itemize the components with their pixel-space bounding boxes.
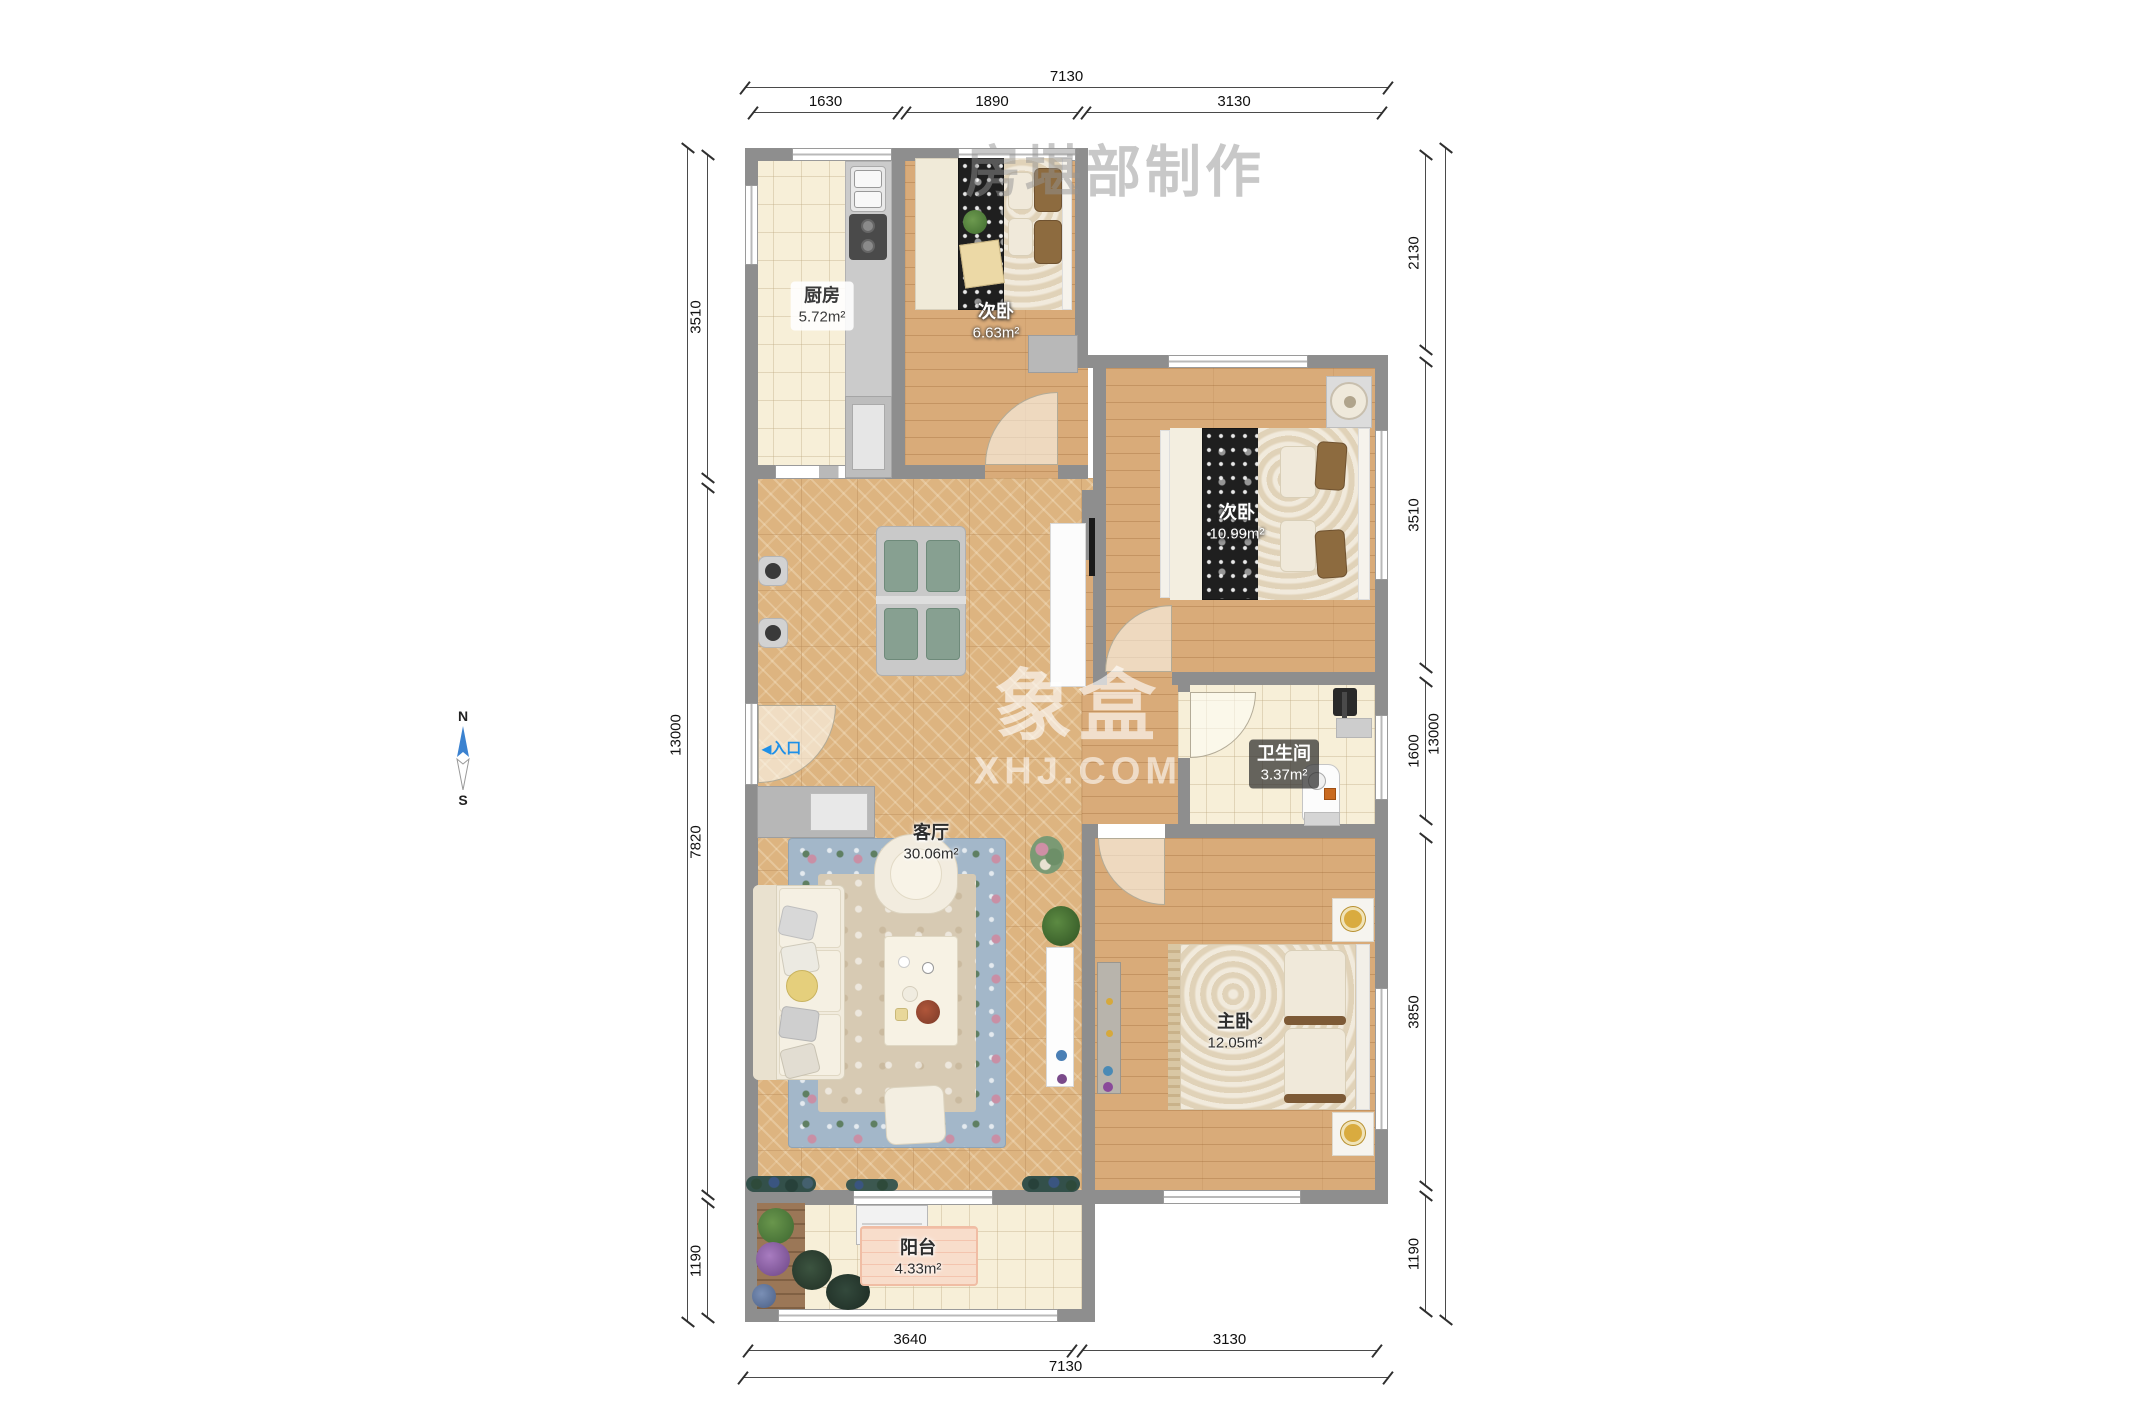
bedroom-small-area: 6.63m² xyxy=(973,324,1020,344)
master-pillow-accent-1 xyxy=(1284,1016,1346,1025)
coffee-cup-2 xyxy=(922,962,934,974)
dim-left-seg-3: 1190 xyxy=(707,1203,708,1318)
nightstand-lamp-1 xyxy=(1341,907,1365,931)
bedroom-small-pillow-white-2 xyxy=(1008,218,1033,256)
dim-label: 3130 xyxy=(1213,1331,1246,1348)
bathroom-label: 卫生间 3.37m² xyxy=(1249,740,1319,789)
dim-right-seg-4: 3850 xyxy=(1425,838,1426,1186)
balcony-cabinet-line xyxy=(862,1223,922,1225)
balcony-plant-green xyxy=(758,1208,794,1244)
wall-kitchen-right xyxy=(892,148,905,478)
dim-label: 13000 xyxy=(1426,713,1443,755)
bedroom-small-cabinet xyxy=(1028,335,1078,373)
dim-label: 7820 xyxy=(688,825,705,858)
wall-kitchen-bottom-3 xyxy=(1058,465,1088,479)
dining-chair-4 xyxy=(926,608,960,660)
dim-label: 3640 xyxy=(893,1331,926,1348)
tv-cabinet-item-purple xyxy=(1057,1074,1067,1084)
dim-top-seg-1: 1630 xyxy=(753,112,898,113)
wall-kitchen-bottom-1 xyxy=(745,465,775,479)
master-area: 12.05m² xyxy=(1207,1034,1262,1054)
bedroom-mid-pillow-1 xyxy=(1314,441,1347,491)
dim-label: 1190 xyxy=(688,1244,705,1276)
wall-balcony-right xyxy=(1082,1190,1095,1322)
bedroom-mid-top-window xyxy=(1168,355,1308,368)
entry-door-panel xyxy=(745,703,758,785)
living-area: 30.06m² xyxy=(903,845,958,865)
plant-row-2 xyxy=(846,1179,898,1191)
flower-pot xyxy=(1030,836,1064,874)
balcony-plant-small xyxy=(752,1284,776,1308)
master-label: 主卧 12.05m² xyxy=(1207,1011,1262,1054)
bedroom-small-name: 次卧 xyxy=(973,301,1020,324)
bedroom-mid-headboard xyxy=(1358,428,1370,600)
master-name: 主卧 xyxy=(1207,1011,1262,1034)
dim-bottom-seg-2: 3130 xyxy=(1082,1350,1377,1351)
dim-top-seg-2: 1890 xyxy=(906,112,1078,113)
watermark-logo: 象盒 xyxy=(994,644,1162,756)
dim-label: 13000 xyxy=(668,714,685,756)
dim-label: 7130 xyxy=(1049,1358,1082,1375)
dining-chair-3 xyxy=(884,608,918,660)
nightstand-lamp-2 xyxy=(1341,1121,1365,1145)
sofa-pillow-round xyxy=(786,970,818,1002)
tv-cabinet-item-blue xyxy=(1056,1050,1067,1061)
wall-master-left xyxy=(1082,838,1095,1190)
bedroom-mid-name: 次卧 xyxy=(1209,502,1264,525)
watermark-site: XHJ.COM xyxy=(974,751,1182,794)
plant-row-1 xyxy=(746,1176,816,1192)
dim-label: 2130 xyxy=(1406,236,1423,269)
dresser-knob-2 xyxy=(1106,1030,1113,1037)
entrance-label: ◀入口 xyxy=(762,737,801,758)
compass-needle-icon xyxy=(455,726,471,790)
master-right-window xyxy=(1375,988,1388,1130)
bedroom-mid-sheet xyxy=(1170,428,1204,600)
wall-master-top-2 xyxy=(1165,824,1388,838)
balcony-bottom-window xyxy=(778,1309,1058,1322)
coffee-cup-1 xyxy=(898,956,910,968)
table-snack xyxy=(895,1008,908,1021)
master-pillow-1 xyxy=(1284,950,1346,1022)
bathroom-name: 卫生间 xyxy=(1257,743,1311,766)
plant-row-3 xyxy=(1022,1176,1080,1192)
dim-left-seg-1: 3510 xyxy=(707,155,708,478)
balcony-name: 阳台 xyxy=(895,1237,942,1260)
wall-bedroom-mid-bottom-2 xyxy=(1172,672,1388,685)
dresser-knob-1 xyxy=(1106,998,1113,1005)
kitchen-area: 5.72m² xyxy=(799,308,846,328)
speaker-2-cone xyxy=(765,625,781,641)
tv-cabinet xyxy=(1046,947,1074,1087)
vanity-soap xyxy=(1324,788,1336,800)
bedroom-mid-pillow-white-1 xyxy=(1280,446,1316,498)
tv-wall-mounted xyxy=(1089,518,1095,576)
stove-burner-2 xyxy=(861,239,875,253)
master-pillow-accent-2 xyxy=(1284,1094,1346,1103)
dim-label: 3850 xyxy=(1406,995,1423,1028)
bedroom-mid-label: 次卧 10.99m² xyxy=(1209,502,1264,545)
dim-label: 1630 xyxy=(809,93,842,110)
master-pillow-2 xyxy=(1284,1028,1346,1100)
dim-label: 7130 xyxy=(1050,68,1083,85)
dim-right-total: 13000 xyxy=(1445,148,1446,1320)
dim-label: 1190 xyxy=(1406,1238,1423,1270)
floorplan-canvas: 厨房 5.72m² 次卧 6.63m² 次卧 10.99m² 卫生间 3.37m… xyxy=(0,0,2135,1421)
dim-top-seg-3: 3130 xyxy=(1086,112,1382,113)
kitchen-top-window xyxy=(792,148,892,161)
watermark-maker: 房堪部制作 xyxy=(965,128,1265,209)
bedroom-small-tray xyxy=(959,239,1005,288)
dresser-item-purple xyxy=(1103,1082,1113,1092)
dining-chair-1 xyxy=(884,540,918,592)
green-plant xyxy=(1042,906,1080,946)
sofa-backrest xyxy=(753,885,777,1080)
dim-right-seg-5: 1190 xyxy=(1425,1196,1426,1312)
dim-label: 1890 xyxy=(975,93,1008,110)
speaker-1-cone xyxy=(765,563,781,579)
dim-right-seg-1: 2130 xyxy=(1425,155,1426,350)
sink-basin-1 xyxy=(854,170,882,188)
entrance-arrow-icon: ◀ xyxy=(762,742,771,756)
bedroom-small-pillow-2 xyxy=(1034,220,1062,264)
wall-kitchen-bottom-2 xyxy=(885,465,985,479)
dresser-item-teal xyxy=(1103,1066,1113,1076)
living-name: 客厅 xyxy=(903,822,958,845)
master-bottom-window xyxy=(1163,1190,1301,1204)
balcony-plant-pot-1 xyxy=(792,1250,832,1290)
compass-south-label: S xyxy=(458,792,467,808)
bath-mat xyxy=(1336,718,1372,738)
wall-bathroom-left-1 xyxy=(1178,685,1190,692)
bathroom-right-window xyxy=(1375,715,1388,800)
bedroom-mid-right-window xyxy=(1375,430,1388,580)
stove-burner-1 xyxy=(861,219,875,233)
bedroom-mid-pillow-2 xyxy=(1314,529,1347,579)
table-flowers xyxy=(916,1000,940,1024)
coffee-plate xyxy=(902,986,918,1002)
bedroom-small-plant xyxy=(963,210,987,234)
bedroom-mid-fan-hub xyxy=(1344,396,1356,408)
sink-basin-2 xyxy=(854,191,882,208)
kitchen-name: 厨房 xyxy=(799,285,846,308)
kitchen-left-window xyxy=(745,185,758,265)
dim-label: 3510 xyxy=(688,300,705,333)
shoe-cabinet-inner xyxy=(810,793,868,831)
master-bed-fringe xyxy=(1168,944,1180,1110)
dining-table-gap xyxy=(876,596,966,604)
dining-chair-2 xyxy=(926,540,960,592)
dim-left-seg-2: 7820 xyxy=(707,488,708,1195)
living-label: 客厅 30.06m² xyxy=(903,822,958,865)
dim-label: 1600 xyxy=(1406,734,1423,767)
vanity-base xyxy=(1304,812,1340,826)
dim-bottom-total: 7130 xyxy=(743,1377,1388,1378)
bedroom-mid-footboard xyxy=(1160,430,1170,598)
dim-label: 3510 xyxy=(1406,498,1423,531)
dim-bottom-seg-1: 3640 xyxy=(748,1350,1072,1351)
entrance-text: 入口 xyxy=(771,740,801,757)
wall-master-top-1 xyxy=(1082,824,1098,838)
bathroom-area: 3.37m² xyxy=(1257,766,1311,786)
sofa-pillow-3 xyxy=(778,1006,820,1043)
master-headboard xyxy=(1356,944,1370,1110)
living-balcony-window xyxy=(853,1190,993,1205)
bedroom-small-label: 次卧 6.63m² xyxy=(973,301,1020,344)
coffee-table xyxy=(884,936,958,1046)
kitchen-label: 厨房 5.72m² xyxy=(791,282,854,331)
bedroom-mid-area: 10.99m² xyxy=(1209,525,1264,545)
balcony-plant-purple xyxy=(756,1242,790,1276)
dim-label: 3130 xyxy=(1217,93,1250,110)
dim-top-total: 7130 xyxy=(745,87,1388,88)
balcony-label: 阳台 4.33m² xyxy=(895,1237,942,1280)
bedroom-mid-pillow-white-2 xyxy=(1280,520,1316,572)
compass-north-label: N xyxy=(458,708,468,724)
dim-right-seg-2: 3510 xyxy=(1425,362,1426,668)
balcony-area: 4.33m² xyxy=(895,1260,942,1280)
kitchen-cabinet-inner xyxy=(852,404,885,470)
pouf xyxy=(884,1084,947,1145)
